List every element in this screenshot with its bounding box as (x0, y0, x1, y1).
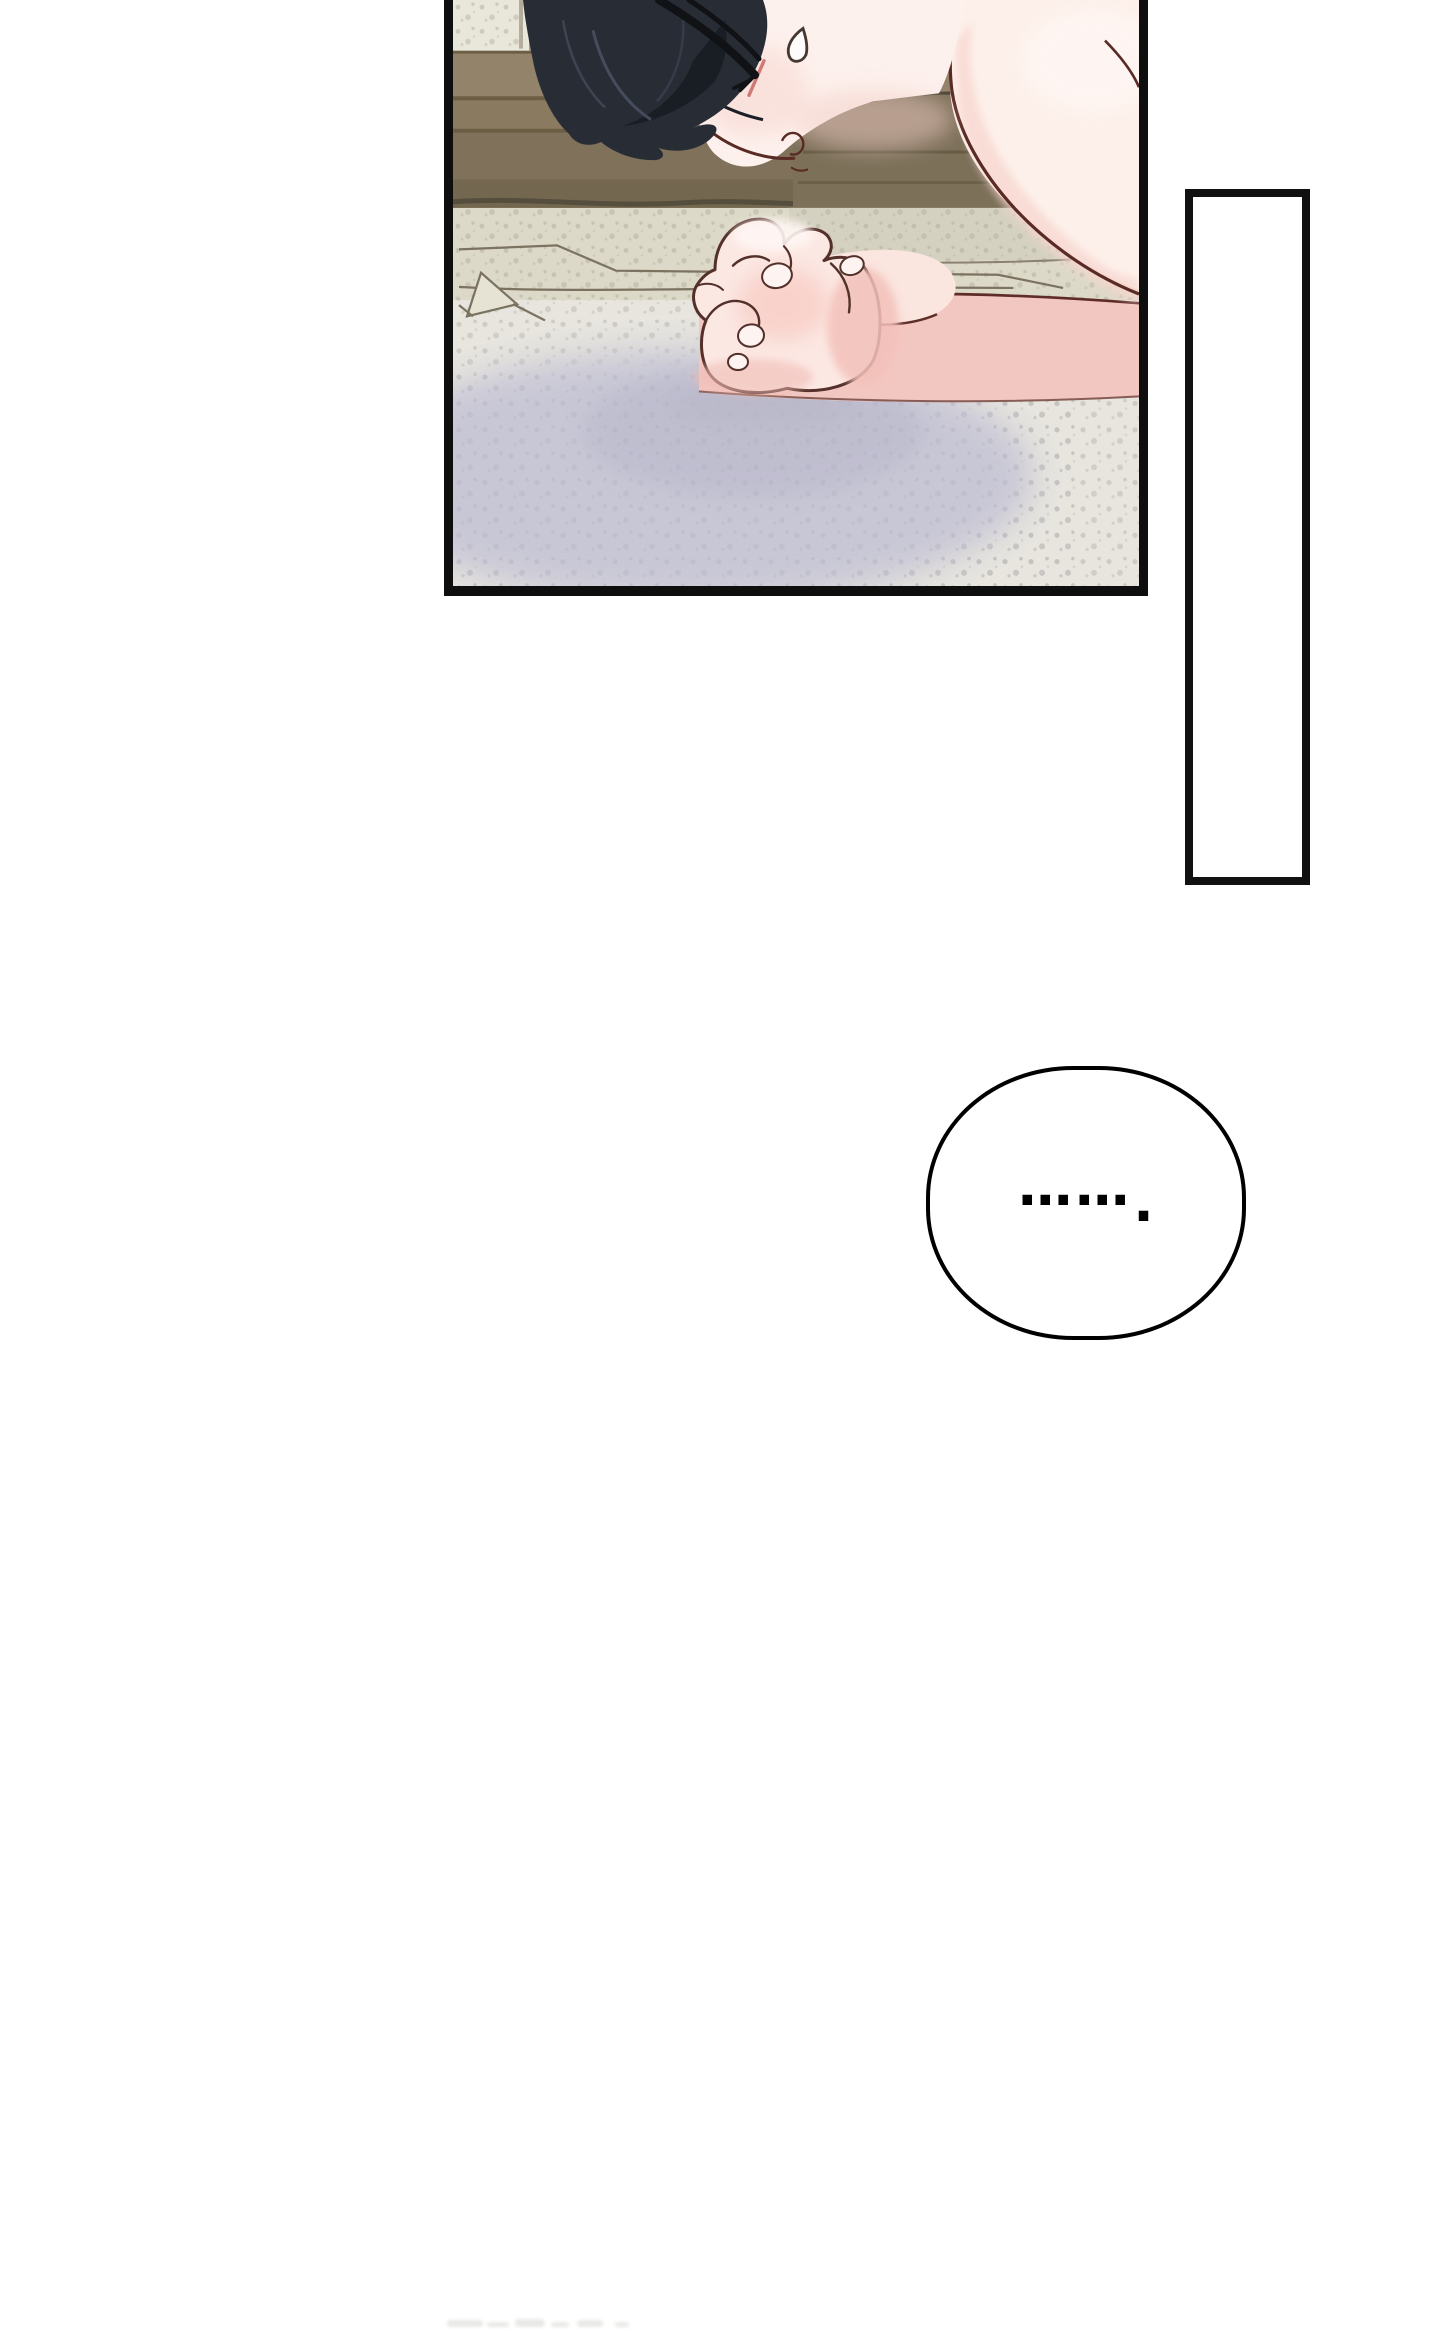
peek-blob (487, 2322, 509, 2327)
comic-panel (444, 0, 1148, 596)
peek-blob (615, 2322, 629, 2327)
peek-blob (577, 2320, 603, 2327)
next-panel-peek (447, 2317, 647, 2329)
peek-blob (551, 2322, 569, 2327)
webtoon-page: ……. (0, 0, 1440, 2329)
speech-text-ellipsis: …… (1018, 1160, 1132, 1214)
vertical-caption-box (1185, 189, 1310, 885)
panel-artwork (453, 0, 1139, 586)
peek-blob (515, 2319, 545, 2327)
speech-text-period: . (1133, 1176, 1154, 1230)
speech-bubble: ……. (926, 1066, 1246, 1340)
peek-blob (447, 2320, 483, 2327)
